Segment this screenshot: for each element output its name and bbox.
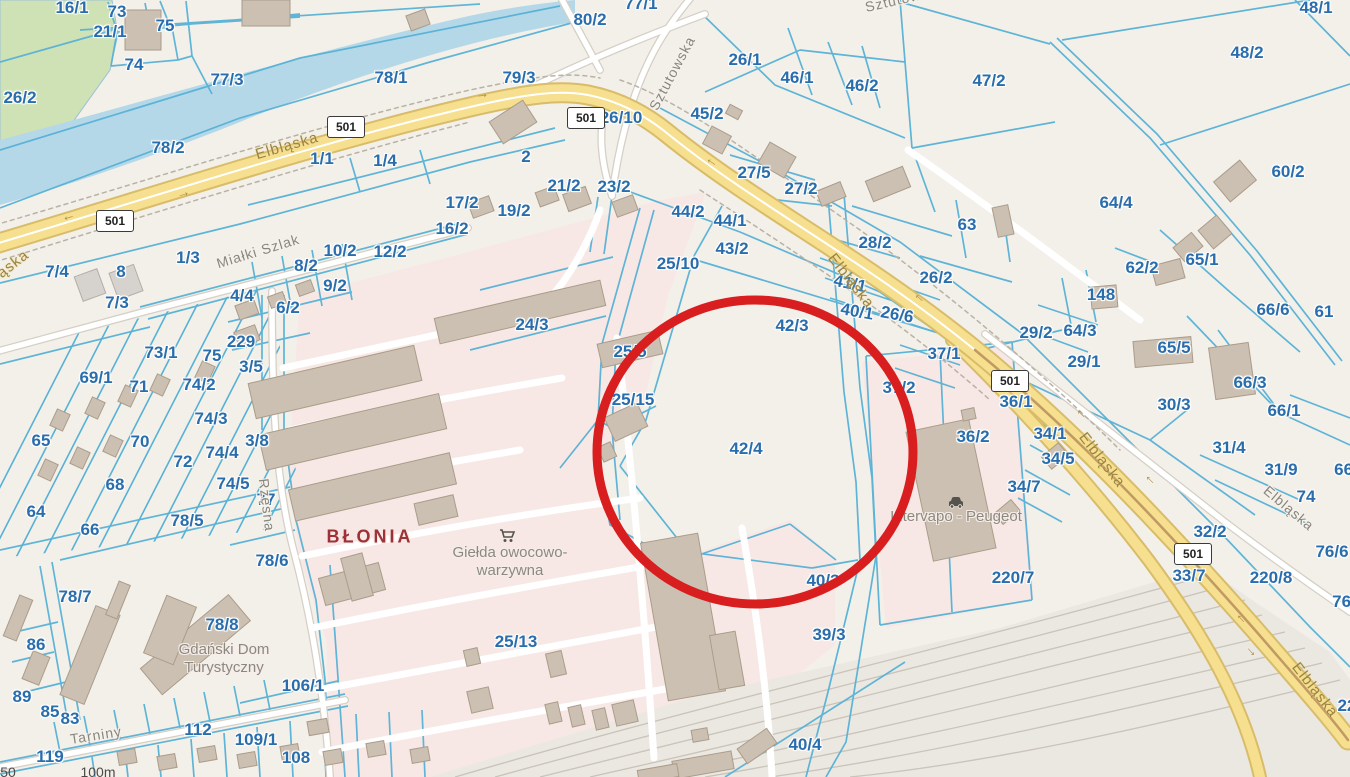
parcel-label: 43/2 [715,239,748,259]
parcel-label: 64 [27,502,46,522]
route-501-shield: 501 [96,210,134,232]
parcel-label: 79/3 [502,68,535,88]
shopping-cart-icon [499,528,517,549]
parcel-label: 47/2 [972,71,1005,91]
parcel-label: 75 [156,16,175,36]
parcel-label: 21/1 [93,22,126,42]
map-canvas[interactable]: 16/17321/1757426/277/378/179/380/277/178… [0,0,1350,777]
parcel-label: 45/2 [690,104,723,124]
parcel-label: 66/1 [1267,401,1300,421]
street-label: Sztutowska [646,33,698,113]
parcel-label: 72 [174,452,193,472]
parcel-label: 25/13 [495,632,538,652]
parcel-label: 85 [41,702,60,722]
parcel-label: 46/2 [845,76,878,96]
parcel-label: 4/4 [230,286,254,306]
parcel-label: 78/7 [58,587,91,607]
parcel-label: 77 [257,490,276,510]
street-label: Elbląska [1261,482,1318,533]
parcel-label: 86 [27,635,46,655]
parcel-label: 1/3 [176,248,200,268]
parcel-label: 78/1 [374,68,407,88]
parcel-label: 9/2 [323,276,347,296]
parcel-label: 73 [108,2,127,22]
parcel-label: 63 [958,215,977,235]
parcel-label: 76/6 [1315,542,1348,562]
road-direction-arrow-icon: ← [1232,606,1253,627]
parcel-label: 44/2 [671,202,704,222]
poi-label: Intervapo - Peugeot [890,508,1022,526]
parcel-label: 40/4 [788,735,821,755]
parcel-label: 48/2 [1230,43,1263,63]
parcel-label: 41/1 [832,271,869,297]
parcel-label: 74/5 [216,474,249,494]
parcel-label: 65 [32,431,51,451]
poi-label: BŁONIA [327,527,414,548]
parcel-label: 112 [184,720,211,740]
parcel-label: 48/1 [1299,0,1332,18]
street-label: ąska [0,246,32,281]
street-label: Elbląska [254,129,321,163]
road-direction-arrow-icon: ← [1072,401,1093,422]
parcel-label: 75 [203,346,222,366]
parcel-label: 78/5 [170,511,203,531]
parcel-label: 69/1 [79,368,112,388]
parcel-label: 74/2 [182,375,215,395]
parcel-label: 24/3 [515,315,548,335]
parcel-label: 77/3 [210,70,243,90]
parcel-label: 26/2 [3,88,36,108]
parcel-label: 3/8 [245,431,269,451]
parcel-label: 76/ [1332,592,1350,612]
parcel-label: 26/10 [600,108,643,128]
street-label: Sztutowska [863,0,946,15]
parcel-label: 40/1 [839,299,875,324]
parcel-label: 29/1 [1067,352,1100,372]
route-501-shield: 501 [991,370,1029,392]
parcel-label: 30/3 [1157,395,1190,415]
parcel-label: 25/10 [657,254,700,274]
parcel-label: 66 [81,520,100,540]
parcel-label: 80/2 [573,10,606,30]
parcel-label: 119 [36,747,63,767]
road-direction-arrow-icon: → [174,182,192,201]
labels-layer: 16/17321/1757426/277/378/179/380/277/178… [0,0,1350,777]
parcel-label: 66/6 [1256,300,1289,320]
scale-label: 100m [80,764,115,777]
parcel-label: 36/2 [956,427,989,447]
parcel-label: 25/5 [613,342,646,362]
parcel-label: 21/2 [547,176,580,196]
parcel-label: 12/2 [373,242,406,262]
parcel-label: 25/15 [612,390,655,410]
parcel-label: 64/4 [1099,193,1132,213]
parcel-label: 68 [106,475,125,495]
parcel-label: 66/3 [1233,373,1266,393]
street-label: Tarniny [69,723,123,747]
parcel-label: 74/3 [194,409,227,429]
parcel-label: 66/ [1334,460,1350,480]
parcel-label: 40/3 [806,571,839,591]
parcel-label: 39/3 [812,625,845,645]
parcel-label: 61 [1315,302,1334,322]
parcel-label: 65/5 [1157,338,1190,358]
parcel-label: 29/2 [1019,323,1052,343]
parcel-label: 26/2 [919,268,952,288]
scale-label: 50 [0,764,16,777]
parcel-label: 27/5 [737,163,770,183]
parcel-label: 71 [130,377,149,397]
street-label: Elbląska [1288,659,1341,720]
parcel-label: 220/8 [1250,568,1293,588]
road-direction-arrow-icon: ← [910,285,931,306]
parcel-label: 36/1 [999,392,1032,412]
road-direction-arrow-icon: → [474,84,490,101]
parcel-label: 65/1 [1185,250,1218,270]
street-label: Miałki Szlak [215,231,302,271]
road-direction-arrow-icon: ← [703,149,723,170]
parcel-label: 8 [116,262,125,282]
route-501-shield: 501 [327,116,365,138]
parcel-label: 1/1 [310,149,334,169]
parcel-label: 3/5 [239,357,263,377]
parcel-label: 32/2 [1193,522,1226,542]
parcel-label: 7/3 [105,293,129,313]
parcel-label: 33/7 [1172,566,1205,586]
parcel-label: 109/1 [235,730,278,750]
parcel-label: 10/2 [323,241,356,261]
poi-label: Giełda owocowo- warzywna [452,544,567,580]
parcel-label: 148 [1087,285,1115,305]
parcel-label: 229 [227,332,255,352]
parcel-label: 77/1 [624,0,657,14]
parcel-label: 7/4 [45,262,69,282]
parcel-label: 22 [1338,696,1350,716]
parcel-label: 31/4 [1212,438,1245,458]
route-501-shield: 501 [567,107,605,129]
parcel-label: 78/6 [255,551,288,571]
parcel-label: 42/4 [729,439,762,459]
parcel-label: 16/1 [55,0,88,18]
parcel-label: 220/7 [992,568,1035,588]
street-label: Elbląska [1075,429,1128,490]
parcel-label: 42/3 [775,316,808,336]
parcel-label: 26/1 [728,50,761,70]
parcel-label: 19/2 [497,201,530,221]
parcel-label: 28/2 [858,233,891,253]
street-label: Rzęsna [256,477,278,532]
parcel-label: 37/1 [927,344,960,364]
parcel-label: 2 [521,147,530,167]
parcel-label: 1/4 [373,151,397,171]
parcel-label: 74/4 [205,443,238,463]
parcel-label: 17/2 [445,193,478,213]
car-icon [947,495,965,514]
parcel-label: 108 [282,748,310,768]
parcel-label: 34/1 [1033,424,1066,444]
parcel-label: 6/2 [276,298,300,318]
street-label: Elbląska [824,250,877,311]
parcel-label: 78/8 [205,615,238,635]
parcel-label: 46/1 [780,68,813,88]
parcel-label: 64/3 [1063,321,1096,341]
parcel-label: 34/7 [1007,477,1040,497]
parcel-label: 62/2 [1125,258,1158,278]
parcel-label: 8/2 [294,256,318,276]
parcel-label: 89 [13,687,32,707]
parcel-label: 27/2 [784,179,817,199]
parcel-label: 26/6 [879,302,915,327]
parcel-label: 74 [1297,487,1316,507]
parcel-label: 37/2 [882,378,915,398]
parcel-label: 74 [125,55,144,75]
road-direction-arrow-icon: ← [59,205,77,224]
parcel-label: 106/1 [282,676,325,696]
parcel-label: 83 [61,709,80,729]
route-501-shield: 501 [1174,543,1212,565]
road-direction-arrow-icon: ← [1141,467,1162,488]
parcel-label: 16/2 [435,219,468,239]
parcel-label: 60/2 [1271,162,1304,182]
parcel-label: 31/9 [1264,460,1297,480]
road-direction-arrow-icon: → [1242,639,1263,660]
parcel-label: 70 [131,432,150,452]
parcel-label: 23/2 [597,177,630,197]
parcel-label: 73/1 [144,343,177,363]
parcel-label: 44/1 [713,211,746,231]
parcel-label: 78/2 [151,138,184,158]
parcel-label: 34/5 [1041,449,1074,469]
poi-label: Gdański Dom Turystyczny [179,641,270,677]
